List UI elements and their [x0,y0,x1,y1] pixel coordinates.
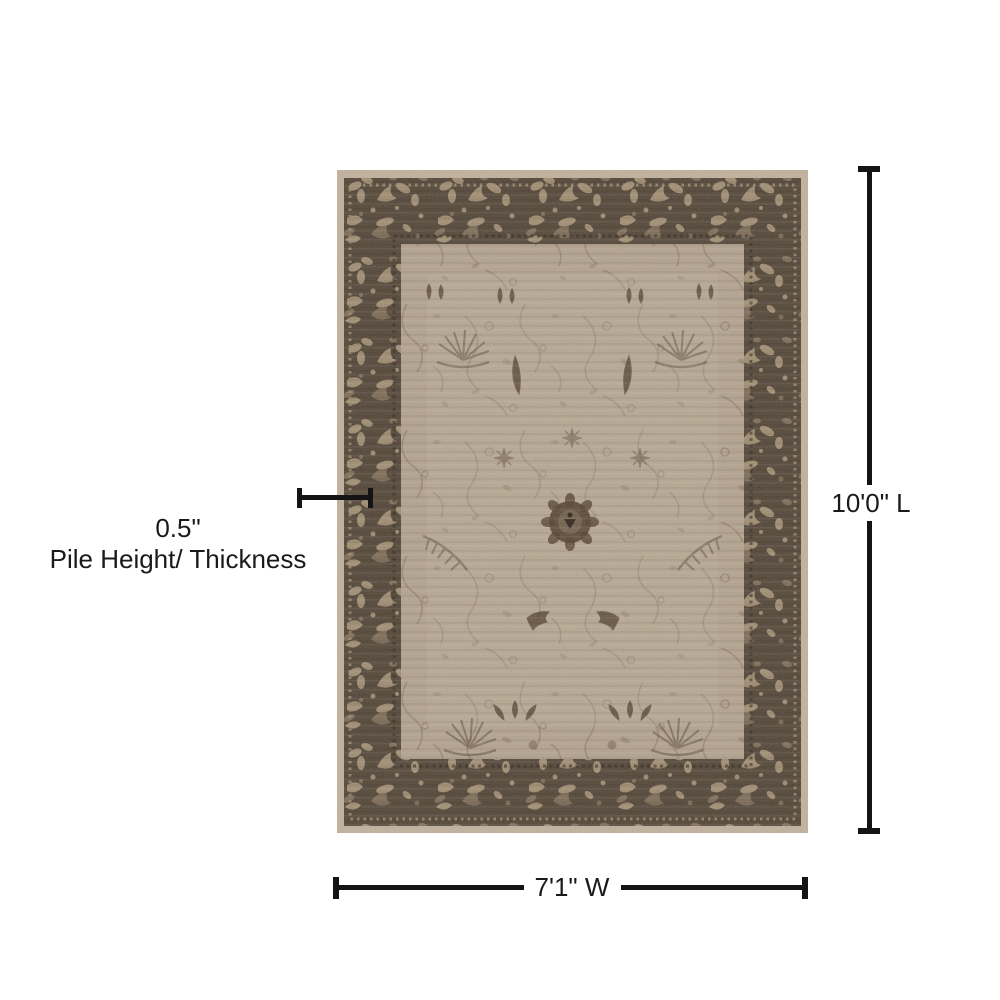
length-line-lower [867,521,872,834]
pile-line [300,495,372,500]
rug-image [337,170,808,833]
pile-tick-right [368,488,373,508]
pile-height-label: Pile Height/ Thickness [22,544,334,575]
pile-height-value: 0.5" [22,513,334,544]
pile-height-annotation: 0.5" Pile Height/ Thickness [22,513,334,575]
product-dimension-image: 10'0" L 7'1" W 0.5" Pile Height/ Thickne… [0,0,1000,1000]
width-line-right [621,885,806,890]
width-label: 7'1" W [512,872,632,903]
width-tick-right [802,877,808,899]
rug-grain-overlay [337,170,808,833]
length-line-upper [867,166,872,485]
length-tick-bottom [858,828,880,834]
width-line-left [336,885,524,890]
length-label: 10'0" L [806,488,936,519]
